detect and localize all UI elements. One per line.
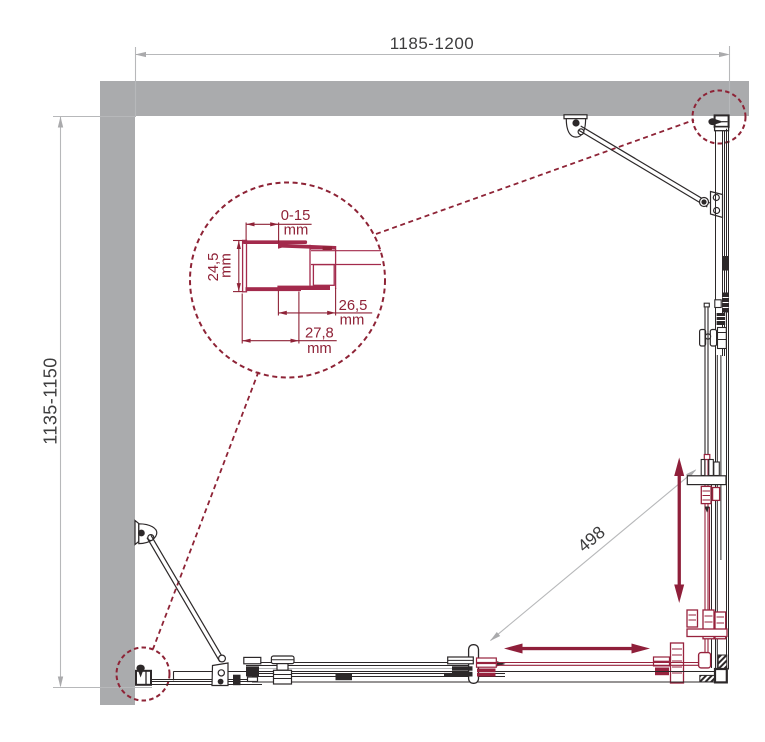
svg-text:1135-1150: 1135-1150 [41,357,61,444]
svg-text:mm: mm [340,312,365,328]
svg-text:mm: mm [218,253,234,278]
svg-text:1185-1200: 1185-1200 [390,34,475,53]
svg-text:mm: mm [284,223,309,239]
svg-text:27,8: 27,8 [305,326,334,342]
svg-text:mm: mm [307,341,332,357]
